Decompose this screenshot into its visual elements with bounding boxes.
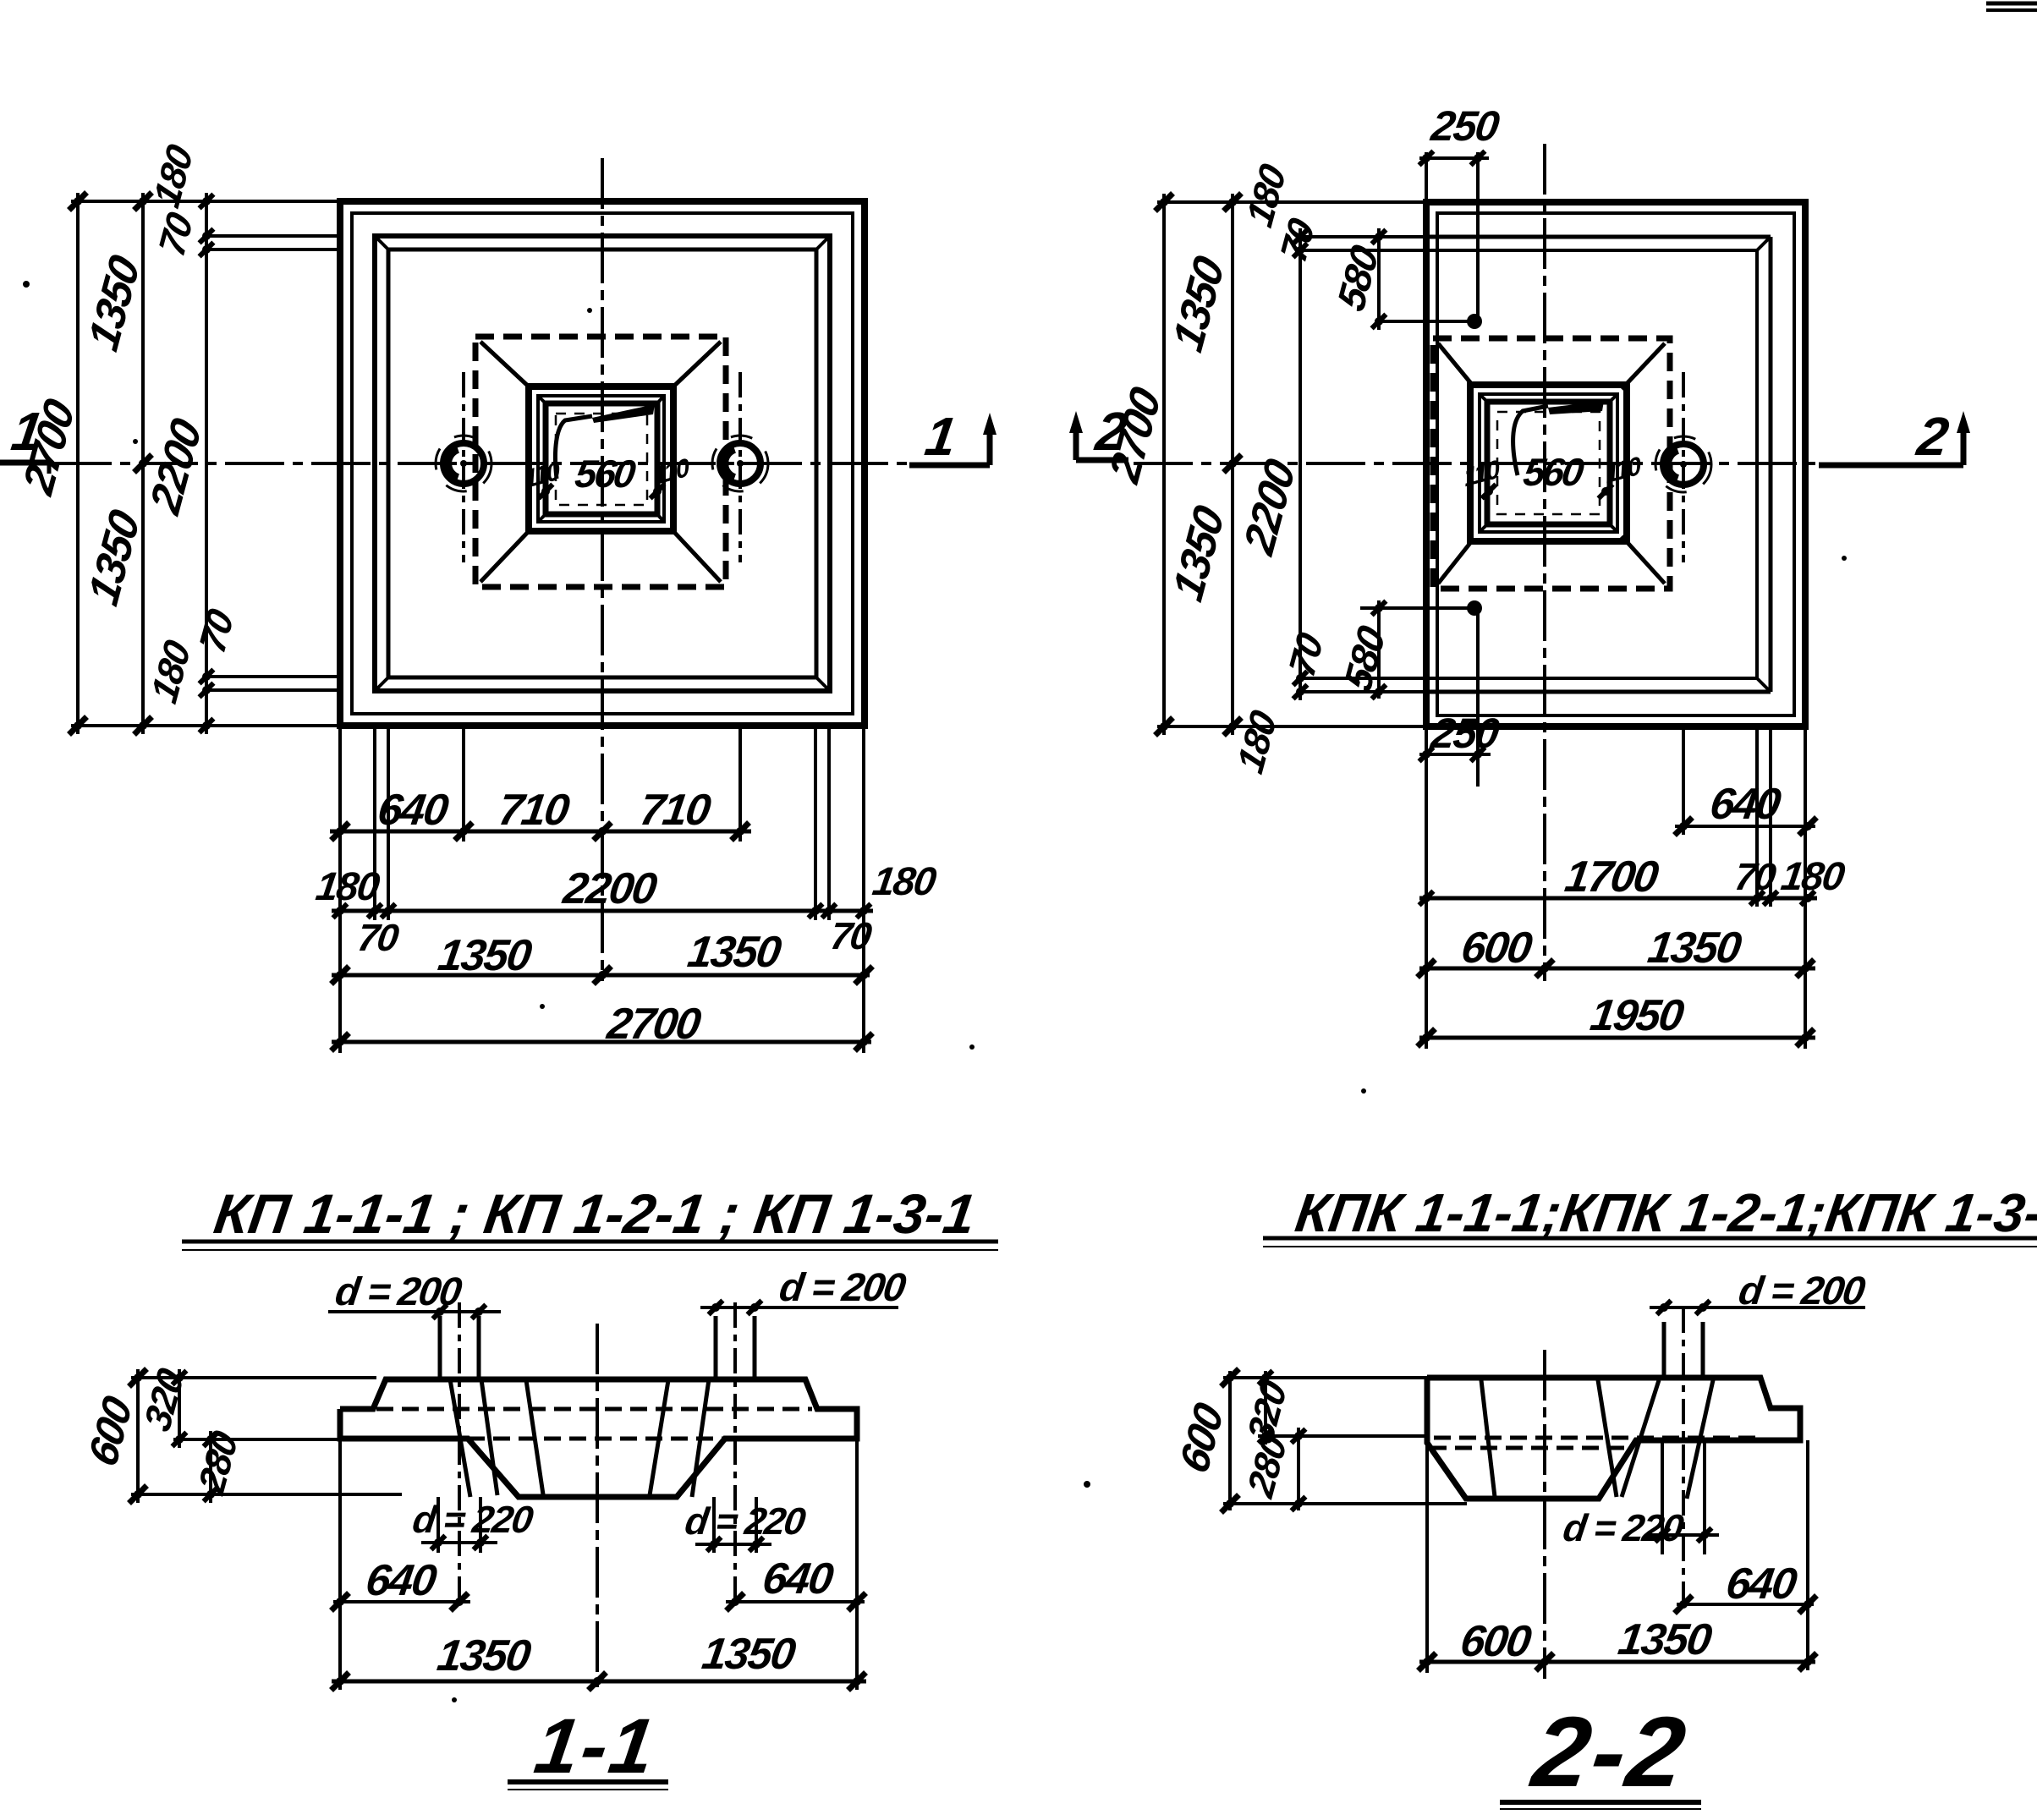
svg-text:d = 220: d = 220 — [410, 1498, 536, 1541]
svg-text:1350: 1350 — [434, 1631, 534, 1680]
svg-text:560: 560 — [1521, 450, 1587, 494]
svg-text:2200: 2200 — [559, 864, 660, 913]
svg-text:70: 70 — [355, 916, 402, 959]
svg-text:710: 710 — [637, 786, 714, 835]
svg-text:70: 70 — [828, 914, 875, 957]
svg-text:640: 640 — [760, 1554, 837, 1603]
svg-text:1-1: 1-1 — [530, 1702, 662, 1789]
svg-text:d = 220: d = 220 — [1561, 1506, 1687, 1549]
svg-text:1700: 1700 — [1562, 852, 1661, 902]
svg-text:640: 640 — [375, 786, 452, 835]
svg-text:1350: 1350 — [684, 928, 784, 977]
svg-text:640: 640 — [1723, 1560, 1800, 1609]
svg-text:250: 250 — [1428, 102, 1502, 150]
svg-text:d = 200: d = 200 — [332, 1269, 464, 1314]
svg-text:600: 600 — [1458, 924, 1535, 973]
svg-text:250: 250 — [1428, 710, 1502, 757]
svg-text:710: 710 — [496, 786, 573, 835]
svg-text:180: 180 — [313, 864, 382, 909]
svg-text:1350: 1350 — [435, 931, 535, 980]
svg-text:180: 180 — [870, 859, 939, 904]
svg-text:1950: 1950 — [1587, 991, 1687, 1040]
svg-text:1350: 1350 — [1644, 924, 1744, 973]
svg-text:640: 640 — [363, 1556, 440, 1605]
svg-text:1350: 1350 — [1615, 1615, 1715, 1664]
svg-text:640: 640 — [1707, 780, 1784, 829]
svg-text:180: 180 — [1778, 854, 1848, 899]
svg-text:560: 560 — [573, 452, 639, 496]
svg-text:2700: 2700 — [603, 1000, 704, 1049]
svg-text:600: 600 — [1458, 1617, 1535, 1666]
svg-text:1350: 1350 — [699, 1630, 799, 1679]
svg-text:2-2: 2-2 — [1525, 1697, 1694, 1808]
svg-text:КПК 1-1-1;КПК 1-2-1;КПК 1-3-1: КПК 1-1-1;КПК 1-2-1;КПК 1-3-1 — [1292, 1182, 2037, 1243]
svg-text:d = 200: d = 200 — [1736, 1269, 1868, 1313]
svg-text:КП 1-1-1 ; КП 1-2-1 ; КП 1-3-: КП 1-1-1 ; КП 1-2-1 ; КП 1-3-1 — [211, 1183, 980, 1246]
svg-text:d = 200: d = 200 — [777, 1265, 909, 1310]
svg-text:70: 70 — [1732, 855, 1779, 898]
svg-text:d = 220: d = 220 — [683, 1499, 809, 1543]
